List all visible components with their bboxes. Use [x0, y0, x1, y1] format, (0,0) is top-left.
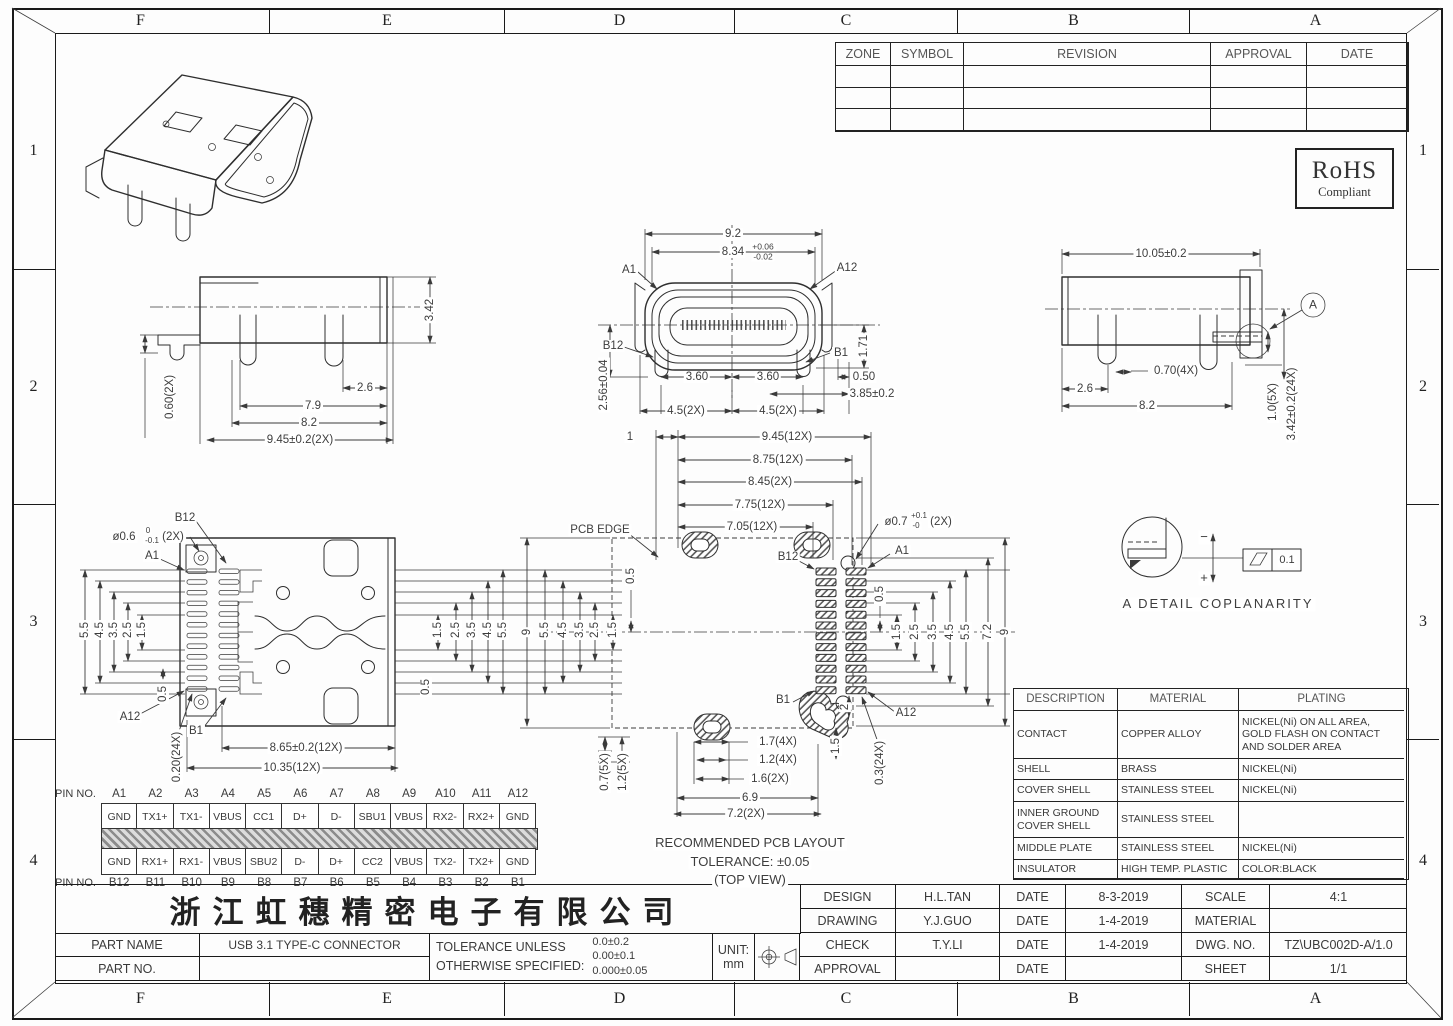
- dim-label: 0.1: [1277, 555, 1296, 567]
- dim-label: +0.1: [909, 512, 929, 520]
- dim-label: 3.5: [108, 620, 120, 640]
- dim-label: 0.70(4X): [1152, 365, 1200, 377]
- dim-label: A12: [835, 262, 859, 274]
- dim-label: 2.6: [1075, 383, 1095, 395]
- dim-label: 9.45(12X): [760, 431, 815, 443]
- dim-label: TOLERANCE: ±0.05: [689, 855, 812, 869]
- dim-label: 7.9: [303, 400, 323, 412]
- dim-label: −: [1198, 530, 1210, 544]
- dim-label: 3.5: [466, 620, 478, 640]
- dim-label: 8.2: [299, 417, 319, 429]
- dim-label: B1: [187, 725, 205, 737]
- dim-label: 1.7(4X): [757, 736, 799, 748]
- dim-label: B12: [601, 340, 625, 352]
- dim-label: 5.5: [497, 620, 509, 640]
- dim-label: 10.35(12X): [262, 762, 323, 774]
- dim-label: 1.5: [432, 620, 444, 640]
- dim-label: (TOP VIEW): [712, 873, 788, 887]
- dim-label: 3.42±0.2(24X): [1286, 366, 1298, 443]
- dim-label: (2X): [928, 516, 954, 528]
- dim-label: 0.7(5X): [599, 751, 611, 793]
- dim-label: 5.5: [539, 620, 551, 640]
- dim-label: 2.5: [122, 620, 134, 640]
- dim-label: A12: [118, 711, 142, 723]
- dim-label: 2: [839, 702, 851, 712]
- dim-label: 2.5: [909, 622, 921, 642]
- dim-label: 1.2(5X): [617, 751, 629, 793]
- engineering-drawing-sheet: FEDCBA FEDCBA 1234 1234: [0, 0, 1453, 1026]
- dim-label: B12: [776, 551, 800, 563]
- dim-label: A1: [893, 545, 911, 557]
- dim-label: 8.45(2X): [746, 476, 794, 488]
- dim-label: 7.2: [982, 622, 994, 642]
- dim-label: 4.5(2X): [665, 405, 707, 417]
- dim-label: -0.02: [751, 253, 774, 262]
- dim-label: A12: [894, 707, 918, 719]
- dim-label: 6.9: [740, 792, 760, 804]
- dim-label: B1: [774, 694, 792, 706]
- dim-label: B1: [832, 347, 850, 359]
- dim-label: 3.60: [755, 371, 781, 383]
- dim-label: 0: [144, 527, 152, 535]
- dim-label: 4.5: [944, 622, 956, 642]
- dim-label: 1.5: [136, 620, 148, 640]
- dim-label: 0.5: [874, 584, 886, 604]
- dim-label: A1: [620, 264, 638, 276]
- dim-label: 9.2: [723, 228, 743, 240]
- dim-label: 1.0(5X): [1267, 381, 1279, 423]
- dim-label: 7.2(2X): [725, 808, 767, 820]
- dim-label: 1.5: [607, 620, 619, 640]
- dim-label: ø0.7: [882, 516, 909, 528]
- dim-label: PCB EDGE: [568, 524, 631, 536]
- dim-label: 4.5: [94, 620, 106, 640]
- dimension-annotations: 3.420.60(2X)2.67.98.29.45±0.2(2X)9.28.34…: [0, 0, 1453, 1026]
- dim-label: 2.56±0.04: [598, 357, 610, 412]
- dim-label: 0.5: [625, 566, 637, 586]
- dim-label: B12: [173, 512, 197, 524]
- dim-label: 3.5: [927, 622, 939, 642]
- dim-label: A DETAIL COPLANARITY: [1121, 597, 1316, 611]
- dim-label: 5.5: [960, 622, 972, 642]
- dim-label: 0.50: [851, 371, 877, 383]
- dim-label: 0.60(2X): [164, 373, 176, 421]
- dim-label: 8.34: [720, 246, 746, 258]
- dim-label: 3.42: [424, 297, 436, 323]
- dim-label: 4.5: [557, 620, 569, 640]
- dim-label: 2.5: [589, 620, 601, 640]
- dim-label: 1.5: [891, 622, 903, 642]
- dim-label: 8.75(12X): [751, 454, 806, 466]
- dim-label: 5.5: [79, 620, 91, 640]
- dim-label: 2.6: [355, 382, 375, 394]
- dim-label: 4.5: [482, 620, 494, 640]
- dim-label: +: [1198, 571, 1210, 585]
- dim-label: A: [1307, 299, 1319, 312]
- dim-label: +0.06: [750, 243, 776, 252]
- dim-label: 7.75(12X): [733, 499, 788, 511]
- dim-label: 0.5: [420, 677, 432, 697]
- dim-label: 1: [625, 431, 635, 443]
- dim-label: -0.1: [143, 537, 161, 545]
- dim-label: 3.60: [684, 371, 710, 383]
- dim-label: 3.85±0.2: [848, 388, 897, 400]
- dim-label: 9: [521, 627, 533, 637]
- dim-label: ø0.6: [110, 531, 137, 543]
- dim-label: 0.5: [157, 684, 169, 704]
- dim-label: 1.2(4X): [757, 754, 799, 766]
- dim-label: 0.20(24X): [171, 730, 183, 785]
- dim-label: RECOMMENDED PCB LAYOUT: [653, 836, 847, 850]
- dim-label: 9: [999, 627, 1011, 637]
- dim-label: A1: [143, 550, 161, 562]
- dim-label: (2X): [160, 531, 186, 543]
- dim-label: 0.3(24X): [874, 739, 886, 787]
- dim-label: 1.71: [858, 333, 870, 359]
- dim-label: -0: [910, 522, 921, 530]
- dim-label: 10.05±0.2: [1133, 248, 1188, 260]
- dim-label: 1.6(2X): [749, 773, 791, 785]
- dim-label: 2.5: [450, 620, 462, 640]
- dim-label: 8.2: [1137, 400, 1157, 412]
- dim-label: 3.5: [574, 620, 586, 640]
- dim-label: 8.65±0.2(12X): [268, 742, 345, 754]
- dim-label: 9.45±0.2(2X): [265, 434, 335, 446]
- dim-label: 1.5: [830, 736, 842, 756]
- dim-label: 7.05(12X): [725, 521, 780, 533]
- dim-label: 4.5(2X): [757, 405, 799, 417]
